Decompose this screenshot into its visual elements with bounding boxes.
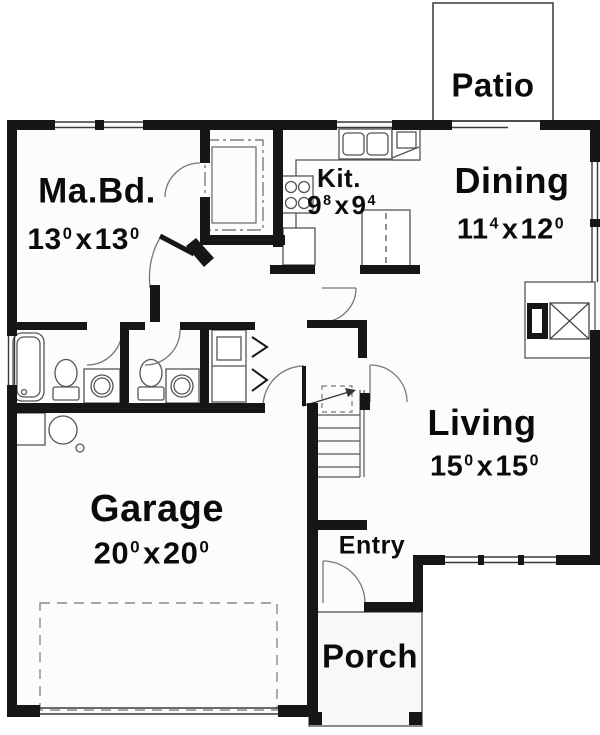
- dining-label: Dining: [455, 163, 570, 199]
- corner-counter: [392, 128, 420, 160]
- kitchen-sink: [339, 129, 392, 159]
- toilet: [53, 360, 79, 401]
- water-heater: [49, 416, 77, 444]
- dining-dimensions: 114x120: [457, 216, 565, 245]
- toilet: [138, 360, 164, 401]
- floor-plan-drawing: [0, 0, 600, 735]
- sink-vanity: [84, 369, 120, 403]
- porch-label: Porch: [322, 640, 418, 673]
- master-bedroom-label: Ma.Bd.: [38, 174, 156, 209]
- living-label: Living: [428, 405, 537, 441]
- living-dimensions: 150x150: [430, 453, 540, 482]
- kitchen-label: Kit.: [317, 165, 361, 191]
- garage-label: Garage: [90, 490, 224, 528]
- porch-post: [409, 712, 422, 725]
- master-bedroom-dimensions: 130x130: [27, 225, 140, 255]
- patio-label: Patio: [451, 69, 534, 102]
- bathtub: [13, 333, 44, 401]
- floor-plan: Patio Ma.Bd. 130x130 Kit. 98x94 Dining 1…: [0, 0, 600, 735]
- entry-label: Entry: [339, 534, 405, 559]
- floor-drain: [76, 444, 84, 452]
- furnace: [13, 413, 45, 445]
- sink-vanity: [166, 369, 199, 403]
- refrigerator: [362, 210, 410, 267]
- garage-dimensions: 200x200: [94, 538, 211, 569]
- fireplace: [525, 282, 595, 358]
- washer-dryer-stack: [212, 330, 246, 402]
- kitchen-dimensions: 98x94: [307, 192, 377, 218]
- kitchen-cabinet: [283, 228, 315, 265]
